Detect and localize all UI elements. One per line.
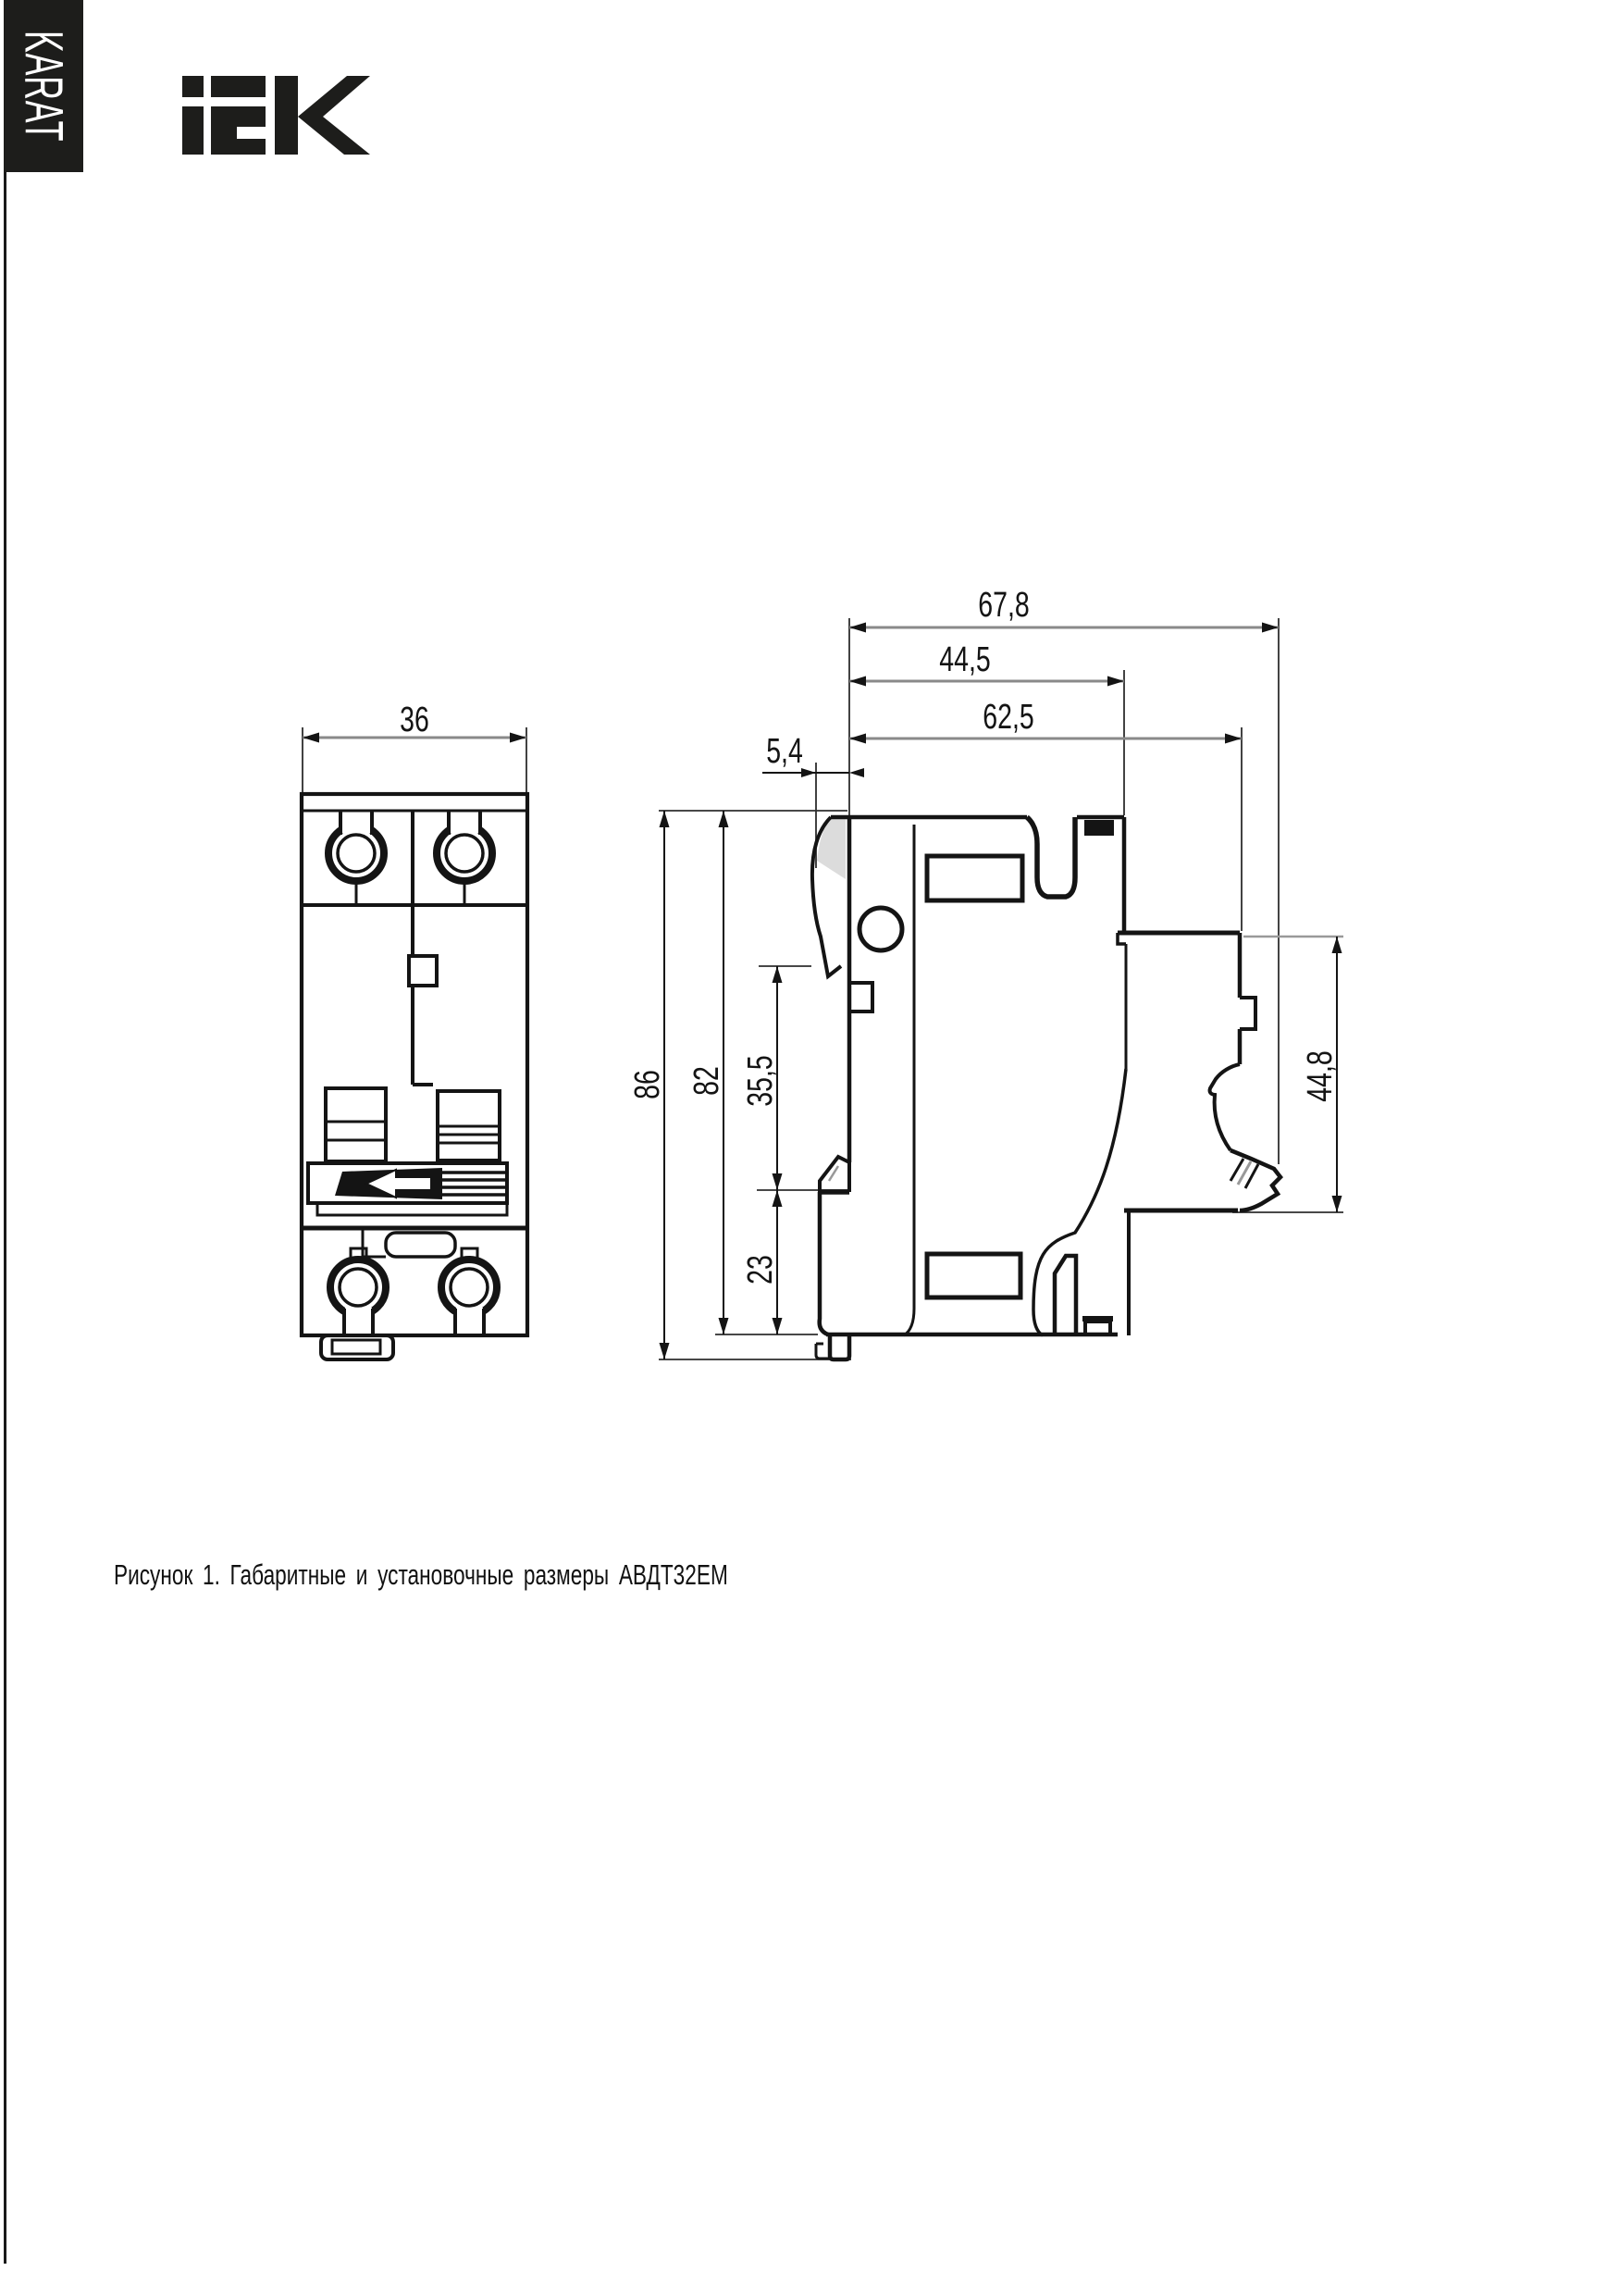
side-upper-window xyxy=(927,856,1022,900)
dim-height-total: 86 xyxy=(628,1070,667,1099)
dim-height-body: 82 xyxy=(687,1066,726,1096)
dim-depth-plate: 62,5 xyxy=(983,698,1033,737)
front-din-tab-detail xyxy=(332,1340,380,1354)
figure-caption: Рисунок 1. Габаритные и установочные раз… xyxy=(114,1558,728,1592)
dim-front-width: 36 xyxy=(400,701,429,739)
front-top-terminals xyxy=(328,811,492,905)
front-toggle-handle xyxy=(308,1163,507,1215)
technical-drawing: 36 xyxy=(0,0,1620,2296)
front-mechanism xyxy=(326,905,500,1161)
dim-depth-total: 67,8 xyxy=(978,586,1029,625)
front-view: 36 xyxy=(302,701,527,1359)
side-view: 67,8 44,5 62,5 5,4 86 82 35,5 23 44,8 xyxy=(628,586,1343,1359)
side-din-plate xyxy=(1118,933,1280,1335)
din-spring-clip xyxy=(1230,1150,1280,1210)
dim-depth-body: 44,5 xyxy=(939,640,990,679)
dim-plate-height: 44,8 xyxy=(1301,1050,1340,1101)
dim-rail-lower: 23 xyxy=(741,1255,780,1285)
dim-rail-upper: 35,5 xyxy=(741,1055,780,1106)
side-body xyxy=(812,817,1126,1359)
dim-front-offset: 5,4 xyxy=(766,732,803,771)
page-root: { "sidebar": { "label": "KARAT" }, "logo… xyxy=(0,0,1620,2296)
side-lower-window xyxy=(927,1254,1020,1297)
front-bottom-terminals xyxy=(330,1228,497,1335)
